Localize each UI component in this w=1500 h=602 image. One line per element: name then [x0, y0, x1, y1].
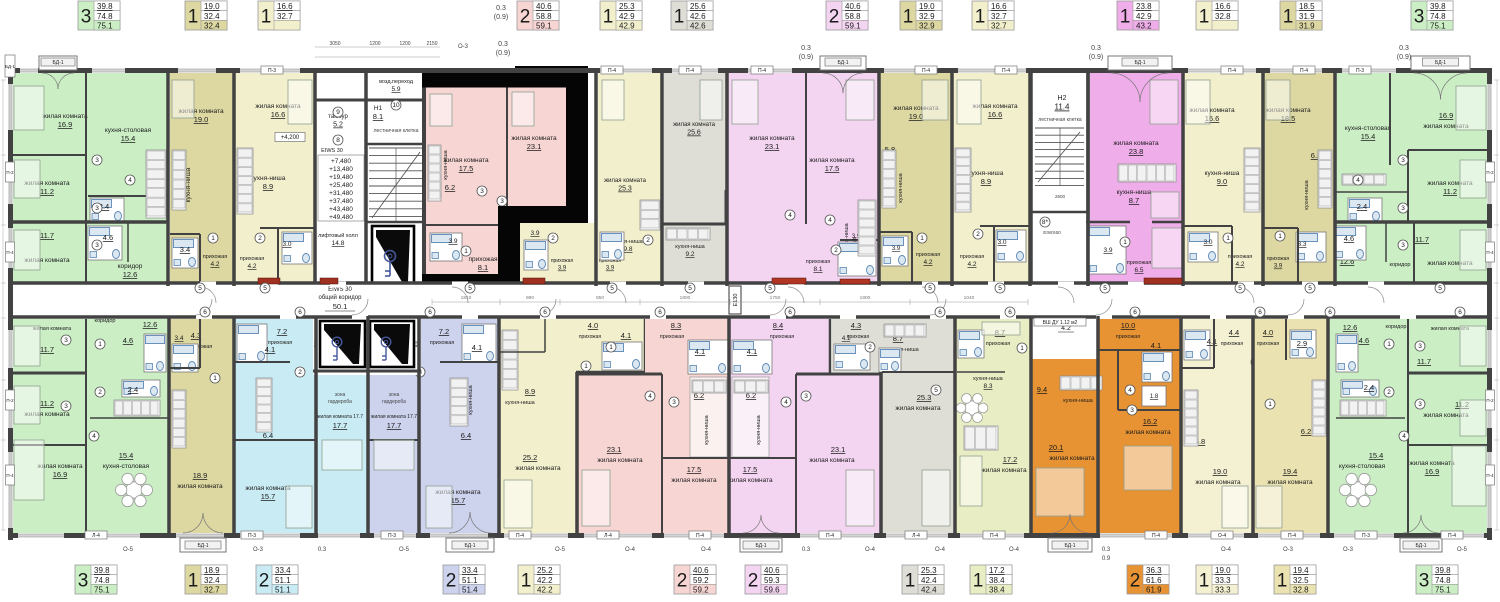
svg-text:П-3: П-3	[1356, 68, 1364, 74]
svg-text:33.3: 33.3	[1215, 576, 1231, 585]
svg-text:4.3: 4.3	[851, 321, 861, 330]
svg-text:2.4: 2.4	[1364, 383, 1374, 392]
svg-text:гардероба: гардероба	[328, 399, 352, 405]
svg-text:8.9: 8.9	[263, 182, 273, 191]
svg-text:6.2: 6.2	[1301, 427, 1311, 436]
svg-text:23.8: 23.8	[1129, 147, 1144, 156]
svg-text:4: 4	[1356, 177, 1360, 184]
svg-text:П-3: П-3	[268, 68, 276, 74]
svg-text:1: 1	[1199, 571, 1210, 592]
svg-text:прихожая: прихожая	[430, 340, 455, 346]
svg-text:38.4: 38.4	[989, 576, 1005, 585]
svg-text:58.8: 58.8	[536, 12, 552, 21]
svg-text:3.9: 3.9	[1274, 264, 1283, 270]
svg-text:жилая комната: жилая комната	[727, 477, 773, 484]
svg-text:7.2: 7.2	[277, 327, 287, 336]
svg-text:О-4: О-4	[1221, 547, 1232, 553]
svg-text:11.7: 11.7	[1417, 357, 1431, 366]
svg-text:5: 5	[263, 285, 267, 292]
svg-text:кухня-столовая: кухня-столовая	[1345, 125, 1392, 132]
svg-text:2: 2	[976, 231, 980, 238]
svg-text:3.0: 3.0	[997, 239, 1006, 246]
svg-text:42.9: 42.9	[1136, 12, 1152, 21]
svg-text:П-3: П-3	[388, 533, 396, 539]
svg-text:32.7: 32.7	[991, 21, 1007, 30]
svg-text:8.3: 8.3	[983, 383, 992, 390]
svg-text:3: 3	[1401, 242, 1405, 249]
svg-text:жилая комната: жилая комната	[1113, 140, 1159, 147]
svg-text:1: 1	[98, 341, 102, 348]
svg-text:БД-1: БД-1	[5, 64, 15, 69]
svg-text:прихожая: прихожая	[1267, 256, 1290, 262]
svg-text:4: 4	[1402, 433, 1406, 440]
svg-text:+31,480: +31,480	[329, 190, 353, 197]
svg-text:О-5: О-5	[1457, 547, 1468, 553]
svg-text:БД-1: БД-1	[755, 543, 766, 549]
svg-text:прихожая: прихожая	[551, 258, 574, 264]
svg-text:33.3: 33.3	[1215, 585, 1231, 594]
svg-text:1.8: 1.8	[1150, 394, 1159, 400]
svg-text:32.9: 32.9	[919, 21, 935, 30]
svg-text:11.2: 11.2	[1443, 187, 1457, 196]
svg-text:3: 3	[95, 205, 99, 212]
svg-text:прихожая: прихожая	[240, 256, 265, 262]
svg-text:4.1: 4.1	[747, 347, 757, 356]
svg-text:1800: 1800	[860, 295, 871, 301]
svg-text:11.7: 11.7	[1415, 235, 1429, 244]
svg-text:лифтовый холл: лифтовый холл	[318, 232, 358, 239]
svg-text:8.4: 8.4	[773, 321, 783, 330]
svg-text:кухня-ниша: кухня-ниша	[468, 384, 474, 414]
svg-text:+7,480: +7,480	[331, 158, 351, 165]
svg-text:лестничная клетка: лестничная клетка	[1038, 117, 1082, 123]
svg-text:16.6: 16.6	[988, 110, 1003, 119]
svg-text:жилая комната: жилая комната	[895, 405, 941, 412]
svg-text:4.1: 4.1	[1151, 341, 1161, 350]
svg-text:6: 6	[203, 309, 207, 316]
svg-text:3.0: 3.0	[282, 241, 291, 248]
svg-text:жилая комната: жилая комната	[1409, 460, 1455, 467]
svg-text:16.2: 16.2	[1143, 417, 1158, 426]
svg-text:5.9: 5.9	[391, 86, 400, 93]
svg-text:4: 4	[1128, 387, 1132, 394]
svg-text:кухня-столовая: кухня-столовая	[103, 463, 150, 470]
svg-text:3: 3	[500, 198, 504, 205]
svg-text:(0.9): (0.9)	[1089, 54, 1103, 61]
svg-text:прихожая: прихожая	[986, 341, 1011, 347]
svg-text:16.6: 16.6	[991, 2, 1007, 11]
svg-text:3.9: 3.9	[1103, 247, 1112, 254]
svg-text:2: 2	[98, 389, 102, 396]
svg-text:4.0: 4.0	[588, 321, 598, 330]
svg-text:П-4: П-4	[1002, 68, 1010, 74]
svg-text:17.2: 17.2	[1003, 455, 1018, 464]
svg-text:О-5: О-5	[123, 547, 134, 553]
svg-text:51.1: 51.1	[275, 585, 291, 594]
svg-text:5: 5	[468, 285, 472, 292]
svg-text:74.8: 74.8	[1435, 576, 1451, 585]
svg-text:25.3: 25.3	[921, 566, 937, 575]
svg-text:42.9: 42.9	[619, 21, 635, 30]
svg-text:17.5: 17.5	[687, 465, 702, 474]
svg-text:возд.переход: возд.переход	[379, 79, 414, 85]
svg-text:4.6: 4.6	[123, 336, 133, 345]
svg-text:1: 1	[905, 571, 916, 592]
svg-text:1: 1	[609, 344, 613, 351]
svg-text:8.1: 8.1	[373, 112, 383, 121]
svg-text:1040: 1040	[964, 295, 975, 301]
svg-text:6.4: 6.4	[461, 431, 471, 440]
svg-text:П-4: П-4	[1448, 533, 1456, 539]
svg-text:4.6: 4.6	[1344, 234, 1354, 243]
svg-text:17.7: 17.7	[387, 421, 402, 430]
svg-text:жилая комната: жилая комната	[1049, 455, 1095, 462]
svg-text:прихожая: прихожая	[579, 334, 602, 340]
svg-text:1: 1	[920, 235, 924, 242]
svg-text:кухня-ниша: кухня-ниша	[1205, 170, 1240, 177]
svg-text:3: 3	[1401, 205, 1405, 212]
svg-text:4.2: 4.2	[1235, 261, 1244, 268]
svg-text:коридор: коридор	[118, 263, 143, 270]
svg-text:2: 2	[834, 247, 838, 254]
svg-text:11.7: 11.7	[40, 231, 54, 240]
svg-text:кухня-ниша: кухня-ниша	[1117, 189, 1152, 196]
svg-text:кухня-ниша: кухня-ниша	[973, 376, 1003, 382]
svg-text:2: 2	[520, 7, 531, 28]
svg-text:8.1: 8.1	[813, 266, 822, 273]
svg-text:2: 2	[646, 237, 650, 244]
svg-text:10.0: 10.0	[1121, 321, 1136, 330]
svg-text:15.7: 15.7	[451, 496, 466, 505]
svg-text:18.9: 18.9	[204, 566, 220, 575]
svg-text:3.9: 3.9	[448, 238, 457, 245]
svg-text:59.1: 59.1	[845, 21, 861, 30]
svg-text:25.2: 25.2	[537, 566, 553, 575]
svg-text:2: 2	[829, 7, 840, 28]
svg-text:6.5: 6.5	[1134, 267, 1143, 274]
svg-text:коридор: коридор	[1390, 262, 1411, 268]
svg-text:9: 9	[336, 109, 340, 116]
svg-text:19.0: 19.0	[1215, 566, 1231, 575]
svg-text:8.9: 8.9	[525, 387, 535, 396]
svg-text:5: 5	[1438, 285, 1442, 292]
svg-text:О-4: О-4	[625, 547, 636, 553]
svg-text:23.1: 23.1	[765, 142, 780, 151]
svg-text:20.1: 20.1	[1049, 443, 1064, 452]
svg-text:1810: 1810	[461, 295, 472, 301]
svg-text:жилая комната: жилая комната	[749, 135, 795, 142]
svg-text:12.6: 12.6	[1343, 323, 1358, 332]
svg-text:2600: 2600	[1055, 194, 1066, 199]
svg-text:19.4: 19.4	[1283, 467, 1298, 476]
svg-text:жилая комната 17.7: жилая комната 17.7	[317, 414, 363, 420]
svg-text:2: 2	[868, 344, 872, 351]
svg-text:БД-1: БД-1	[464, 543, 475, 549]
svg-text:16.9: 16.9	[58, 120, 73, 129]
svg-text:3: 3	[1414, 7, 1425, 28]
svg-text:19.0: 19.0	[194, 115, 209, 124]
svg-text:6: 6	[788, 309, 792, 316]
svg-text:5: 5	[198, 285, 202, 292]
svg-text:39.8: 39.8	[1435, 566, 1451, 575]
svg-text:прихожая: прихожая	[847, 334, 870, 340]
svg-text:38.4: 38.4	[989, 585, 1005, 594]
svg-text:жилая комната: жилая комната	[604, 178, 646, 184]
svg-text:15.4: 15.4	[1369, 451, 1384, 460]
svg-text:П-4: П-4	[696, 533, 704, 539]
svg-text:42.9: 42.9	[619, 12, 635, 21]
svg-text:1: 1	[1020, 345, 1024, 352]
svg-text:32.8: 32.8	[1293, 585, 1309, 594]
svg-text:О-4: О-4	[1009, 547, 1020, 553]
svg-text:4: 4	[784, 399, 788, 406]
svg-text:3: 3	[78, 571, 89, 592]
svg-text:31.9: 31.9	[1299, 12, 1315, 21]
svg-text:(0.9): (0.9)	[799, 54, 813, 61]
svg-text:кухня-ниша: кухня-ниша	[1304, 179, 1310, 209]
svg-text:П-4: П-4	[1300, 68, 1308, 74]
svg-text:БД-1: БД-1	[837, 60, 848, 66]
svg-text:П-2: П-2	[1486, 398, 1494, 403]
svg-text:3: 3	[1418, 343, 1422, 350]
svg-text:3.0: 3.0	[1203, 239, 1212, 246]
svg-text:О-3: О-3	[1283, 547, 1294, 553]
svg-text:6: 6	[938, 309, 942, 316]
svg-text:П-4: П-4	[922, 68, 930, 74]
svg-text:0.3: 0.3	[1399, 45, 1409, 52]
svg-text:32.8: 32.8	[1215, 12, 1231, 21]
svg-text:61.6: 61.6	[1146, 576, 1162, 585]
svg-text:жилая комната: жилая комната	[1267, 479, 1313, 486]
svg-text:40.6: 40.6	[693, 566, 709, 575]
svg-text:кухня-ниша: кухня-ниша	[675, 244, 705, 250]
svg-text:6.2: 6.2	[445, 183, 455, 192]
svg-text:+4,200: +4,200	[281, 135, 300, 141]
svg-text:5.2: 5.2	[333, 122, 343, 129]
svg-text:жилая комната 17.7: жилая комната 17.7	[371, 414, 417, 420]
svg-text:1: 1	[1283, 7, 1294, 28]
svg-text:1200: 1200	[369, 41, 380, 47]
svg-text:15.4: 15.4	[1361, 132, 1376, 141]
svg-text:32.5: 32.5	[1293, 576, 1309, 585]
svg-text:П-4: П-4	[6, 250, 14, 255]
svg-text:8.1: 8.1	[478, 263, 488, 272]
svg-text:коридор: коридор	[1386, 324, 1407, 330]
svg-text:4.1: 4.1	[842, 336, 851, 342]
svg-text:6: 6	[428, 309, 432, 316]
svg-text:1: 1	[1277, 571, 1288, 592]
svg-text:4.6: 4.6	[103, 233, 113, 242]
svg-text:6.4: 6.4	[263, 431, 273, 440]
svg-text:25.6: 25.6	[687, 130, 701, 137]
svg-text:75.1: 75.1	[94, 585, 110, 594]
svg-text:0.3: 0.3	[318, 547, 327, 553]
svg-text:1750: 1750	[770, 295, 781, 301]
svg-text:74.8: 74.8	[1430, 12, 1446, 21]
svg-text:1: 1	[1387, 341, 1391, 348]
svg-text:общий коридор: общий коридор	[319, 294, 363, 301]
svg-text:74.8: 74.8	[97, 12, 113, 21]
svg-text:1: 1	[464, 248, 468, 255]
svg-text:жилая комната: жилая комната	[443, 157, 489, 164]
svg-text:2: 2	[748, 571, 759, 592]
svg-text:1: 1	[903, 7, 914, 28]
svg-text:18.5: 18.5	[1299, 2, 1315, 11]
svg-text:3.4: 3.4	[174, 335, 183, 342]
svg-text:1: 1	[188, 571, 199, 592]
svg-text:+49,480: +49,480	[329, 214, 353, 221]
svg-text:5: 5	[768, 285, 772, 292]
svg-text:43.2: 43.2	[1136, 21, 1152, 30]
svg-text:1: 1	[1278, 233, 1282, 240]
svg-text:32.9: 32.9	[919, 12, 935, 21]
svg-text:12.6: 12.6	[123, 270, 138, 279]
svg-text:прихожая: прихожая	[770, 334, 795, 340]
svg-text:3: 3	[95, 242, 99, 249]
svg-text:жилая комната: жилая комната	[671, 477, 717, 484]
svg-text:3: 3	[95, 157, 99, 164]
svg-text:П-4: П-4	[1486, 473, 1494, 478]
svg-text:39.8: 39.8	[94, 566, 110, 575]
svg-text:БД-1: БД-1	[197, 543, 208, 549]
svg-text:П-4: П-4	[608, 68, 616, 74]
svg-text:прихожая: прихожая	[806, 259, 831, 265]
svg-text:Л-4: Л-4	[912, 533, 920, 539]
svg-text:П-4: П-4	[758, 68, 766, 74]
svg-text:3: 3	[1130, 407, 1134, 414]
svg-text:3: 3	[1418, 401, 1422, 408]
svg-text:кухня-ниша: кухня-ниша	[704, 414, 710, 444]
svg-text:42.6: 42.6	[690, 12, 706, 21]
svg-text:4.1: 4.1	[1207, 337, 1217, 346]
svg-text:16.6: 16.6	[277, 2, 293, 11]
svg-text:БД-1: БД-1	[1064, 543, 1075, 549]
svg-text:3.9: 3.9	[606, 266, 615, 272]
svg-text:кухня-ниша: кухня-ниша	[1063, 398, 1093, 404]
svg-text:EIWS60: EIWS60	[1043, 230, 1061, 236]
svg-text:19.0: 19.0	[1213, 467, 1228, 476]
svg-text:2: 2	[1130, 571, 1141, 592]
svg-text:4.2: 4.2	[923, 259, 932, 266]
svg-text:74.8: 74.8	[94, 576, 110, 585]
svg-text:EIWS 30: EIWS 30	[328, 287, 352, 293]
svg-text:(0.9): (0.9)	[1397, 54, 1411, 61]
svg-text:кухня-столовая: кухня-столовая	[105, 127, 152, 134]
svg-text:2: 2	[298, 369, 302, 376]
svg-text:П-4: П-4	[6, 473, 14, 478]
svg-text:0.3: 0.3	[498, 41, 508, 48]
svg-text:6: 6	[658, 309, 662, 316]
svg-text:лестничная клетка: лестничная клетка	[373, 128, 418, 134]
svg-text:39.8: 39.8	[97, 2, 113, 11]
svg-text:19.0: 19.0	[909, 112, 924, 121]
svg-text:3.9: 3.9	[892, 246, 901, 252]
svg-text:0.9: 0.9	[1102, 556, 1111, 562]
svg-text:жилая комната: жилая комната	[673, 122, 715, 128]
svg-text:0.3: 0.3	[1102, 547, 1111, 553]
svg-text:39.8: 39.8	[1430, 2, 1446, 11]
svg-text:6: 6	[1458, 309, 1462, 316]
svg-text:16.6: 16.6	[1215, 2, 1231, 11]
svg-text:4: 4	[92, 433, 96, 440]
svg-text:9.8: 9.8	[623, 246, 632, 253]
svg-text:4: 4	[828, 217, 832, 224]
svg-text:5: 5	[1103, 285, 1107, 292]
svg-text:1: 1	[1268, 401, 1272, 408]
svg-text:16.6: 16.6	[271, 110, 286, 119]
svg-text:42.2: 42.2	[537, 585, 553, 594]
svg-text:0.3: 0.3	[1091, 45, 1101, 52]
svg-text:3: 3	[1419, 571, 1430, 592]
svg-text:6: 6	[1328, 309, 1332, 316]
svg-text:+37,480: +37,480	[329, 198, 353, 205]
svg-text:42.2: 42.2	[537, 576, 553, 585]
svg-text:0.3: 0.3	[802, 547, 811, 553]
svg-text:П-2: П-2	[6, 170, 14, 175]
svg-text:жилая комната: жилая комната	[1195, 479, 1241, 486]
svg-text:16.9: 16.9	[1439, 111, 1454, 120]
svg-text:42.4: 42.4	[921, 576, 937, 585]
svg-text:1: 1	[584, 363, 588, 370]
svg-text:П-3: П-3	[248, 533, 256, 539]
svg-text:17.5: 17.5	[825, 164, 840, 173]
svg-text:П-4: П-4	[1288, 533, 1296, 539]
svg-text:Л-4: Л-4	[92, 533, 100, 539]
svg-text:П-4: П-4	[826, 533, 834, 539]
svg-text:прихожая: прихожая	[1116, 334, 1141, 340]
svg-text:+13,480: +13,480	[329, 166, 353, 173]
svg-text:О-3: О-3	[1343, 547, 1354, 553]
svg-text:23.8: 23.8	[1136, 2, 1152, 11]
svg-text:4.1: 4.1	[265, 345, 275, 354]
svg-text:4.2: 4.2	[210, 261, 219, 268]
svg-text:1: 1	[975, 7, 986, 28]
svg-text:БД-1: БД-1	[1134, 60, 1145, 66]
svg-text:П-4: П-4	[990, 533, 998, 539]
svg-text:6: 6	[1008, 309, 1012, 316]
svg-text:11.4: 11.4	[1055, 103, 1071, 112]
svg-text:5: 5	[688, 285, 692, 292]
svg-text:5: 5	[1238, 285, 1242, 292]
svg-text:прихожая: прихожая	[916, 252, 941, 258]
svg-text:59.1: 59.1	[536, 21, 552, 30]
svg-text:1: 1	[973, 571, 984, 592]
svg-text:18.9: 18.9	[193, 471, 208, 480]
svg-text:кухня-ниша: кухня-ниша	[756, 414, 762, 444]
svg-text:32.7: 32.7	[204, 585, 220, 594]
svg-text:15.4: 15.4	[119, 451, 134, 460]
svg-text:2.4: 2.4	[1357, 202, 1367, 211]
svg-text:0.3: 0.3	[801, 45, 811, 52]
svg-text:жилая комната: жилая комната	[245, 485, 291, 492]
svg-text:5: 5	[610, 285, 614, 292]
svg-text:БД-1: БД-1	[1435, 60, 1446, 66]
svg-text:(0.9): (0.9)	[494, 14, 508, 21]
svg-text:6: 6	[1133, 309, 1137, 316]
svg-text:3: 3	[64, 403, 68, 410]
svg-text:17.2: 17.2	[989, 566, 1005, 575]
svg-text:4: 4	[788, 212, 792, 219]
svg-text:9.0: 9.0	[1217, 177, 1227, 186]
svg-text:11.2: 11.2	[40, 399, 54, 408]
svg-text:25.6: 25.6	[690, 2, 706, 11]
svg-text:4.6: 4.6	[1359, 336, 1369, 345]
svg-text:2: 2	[1387, 389, 1391, 396]
svg-text:15.4: 15.4	[121, 134, 136, 143]
svg-text:EIWS 30: EIWS 30	[321, 148, 343, 154]
svg-text:зона: зона	[389, 392, 400, 398]
svg-text:31.9: 31.9	[1299, 21, 1315, 30]
